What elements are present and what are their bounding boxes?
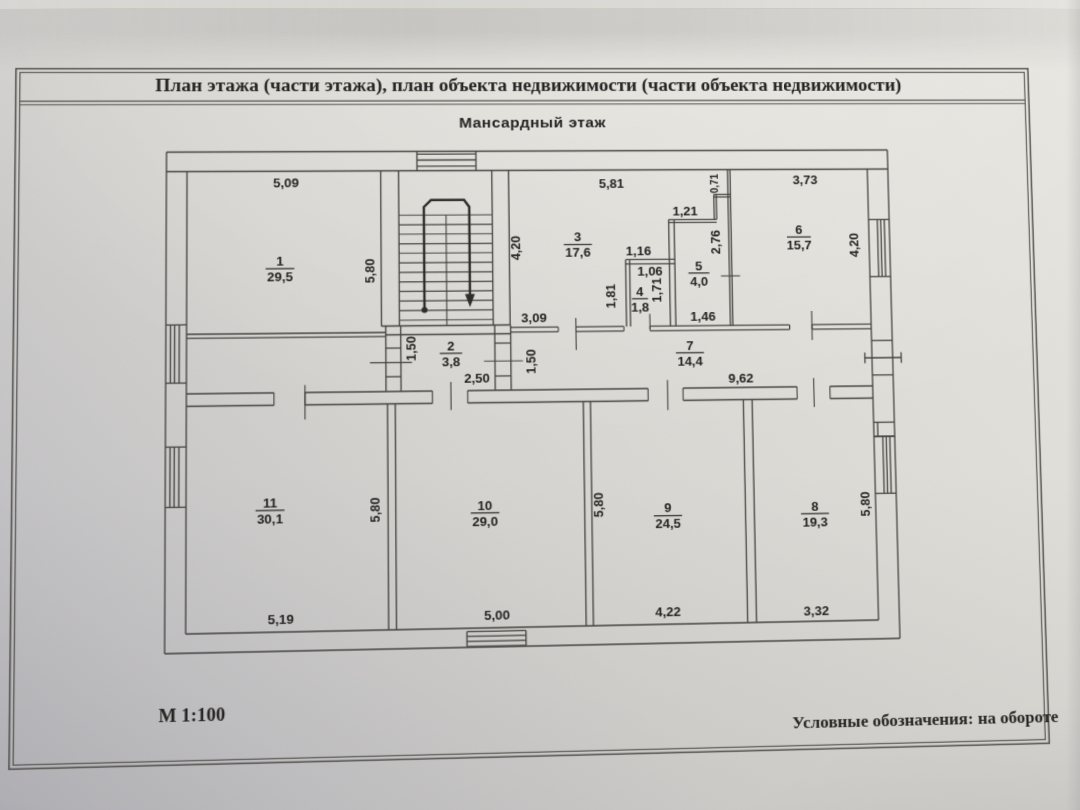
svg-text:24,5: 24,5: [655, 516, 681, 531]
svg-text:11: 11: [263, 495, 277, 510]
svg-text:1,06: 1,06: [637, 264, 662, 279]
svg-text:5,19: 5,19: [268, 612, 294, 628]
svg-text:5: 5: [695, 258, 702, 272]
svg-text:9,62: 9,62: [728, 371, 753, 386]
svg-text:5,80: 5,80: [368, 497, 383, 522]
svg-text:1,8: 1,8: [631, 299, 649, 314]
svg-text:14,4: 14,4: [677, 353, 703, 368]
svg-text:2,50: 2,50: [464, 371, 490, 386]
svg-text:4,20: 4,20: [847, 233, 862, 257]
svg-text:1,21: 1,21: [672, 204, 697, 219]
svg-text:2,76: 2,76: [708, 230, 723, 254]
svg-text:1: 1: [276, 254, 283, 269]
svg-text:5,80: 5,80: [858, 492, 873, 517]
svg-text:1,50: 1,50: [403, 336, 418, 361]
svg-text:17,6: 17,6: [565, 245, 591, 260]
svg-text:9: 9: [664, 501, 672, 516]
svg-text:19,3: 19,3: [802, 514, 828, 529]
svg-text:7: 7: [686, 338, 693, 353]
svg-text:5,81: 5,81: [599, 177, 624, 191]
svg-text:Мансардный этаж: Мансардный этаж: [459, 115, 607, 132]
svg-text:2: 2: [447, 338, 454, 353]
svg-text:5,80: 5,80: [591, 492, 606, 517]
svg-text:10: 10: [478, 498, 493, 513]
svg-text:3: 3: [574, 230, 581, 245]
svg-text:5,00: 5,00: [484, 608, 510, 623]
svg-text:1,50: 1,50: [524, 349, 539, 374]
svg-text:6: 6: [795, 222, 802, 236]
svg-text:М 1:100: М 1:100: [159, 705, 226, 727]
svg-text:4,0: 4,0: [690, 274, 708, 289]
svg-text:1,46: 1,46: [690, 309, 715, 324]
svg-text:1,16: 1,16: [626, 244, 651, 259]
svg-text:Условные обозначения: на оборо: Условные обозначения: на обороте: [792, 707, 1059, 732]
svg-text:План этажа (части этажа), план: План этажа (части этажа), план объекта н…: [155, 76, 901, 97]
svg-text:5,80: 5,80: [362, 259, 377, 284]
svg-text:4,22: 4,22: [655, 604, 681, 619]
svg-text:8: 8: [811, 499, 819, 514]
svg-text:1,71: 1,71: [649, 278, 664, 303]
svg-text:29,0: 29,0: [472, 514, 498, 529]
svg-text:3,8: 3,8: [442, 354, 460, 369]
svg-text:5,09: 5,09: [273, 176, 299, 191]
svg-text:3,09: 3,09: [521, 310, 547, 325]
svg-text:0,71: 0,71: [709, 174, 721, 194]
svg-text:30,1: 30,1: [257, 511, 283, 526]
svg-text:3,73: 3,73: [792, 173, 817, 187]
svg-text:29,5: 29,5: [267, 269, 293, 284]
svg-text:4: 4: [636, 284, 644, 299]
svg-text:3,32: 3,32: [804, 603, 830, 618]
svg-text:4,20: 4,20: [508, 236, 523, 261]
svg-text:15,7: 15,7: [787, 238, 812, 253]
svg-text:1,81: 1,81: [603, 284, 618, 309]
